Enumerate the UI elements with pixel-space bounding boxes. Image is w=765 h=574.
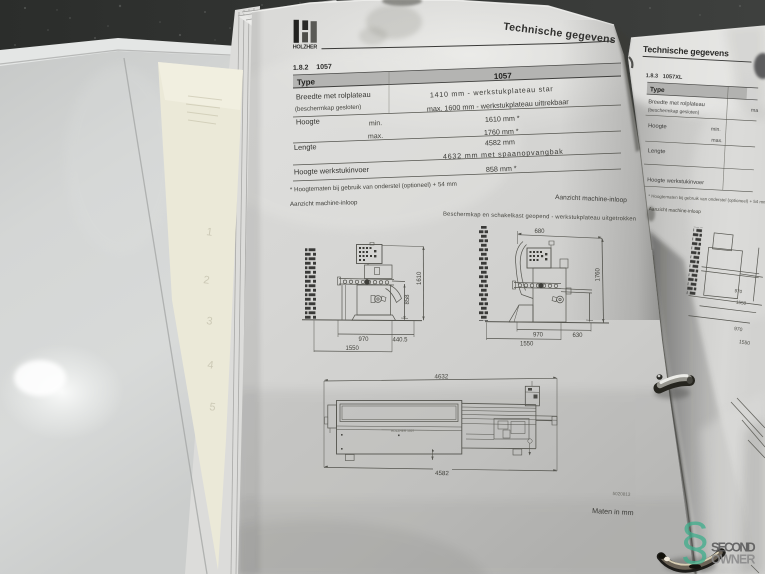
svg-text:5020813: 5020813 — [612, 491, 631, 497]
svg-text:Hoogte: Hoogte — [296, 117, 320, 127]
svg-text:1760: 1760 — [596, 267, 602, 281]
svg-text:970: 970 — [359, 337, 370, 343]
svg-text:970: 970 — [533, 333, 544, 339]
svg-text:4582: 4582 — [435, 470, 449, 477]
svg-text:630: 630 — [573, 333, 584, 339]
svg-text:Lengte: Lengte — [648, 148, 666, 155]
svg-text:HOLZHER 1057: HOLZHER 1057 — [391, 429, 414, 433]
svg-text:max.: max. — [368, 133, 383, 141]
svg-text:Hoogte: Hoogte — [648, 123, 667, 130]
svg-text:1550: 1550 — [520, 342, 534, 348]
svg-text:ma: ma — [751, 108, 759, 114]
svg-text:4582 mm: 4582 mm — [485, 137, 515, 147]
svg-text:Type: Type — [650, 86, 665, 94]
svg-text:min.: min. — [369, 120, 383, 127]
svg-text:1610 mm *: 1610 mm * — [485, 113, 520, 124]
svg-text:Lengte: Lengte — [294, 142, 317, 152]
svg-text:680: 680 — [535, 229, 546, 235]
svg-text:4632: 4632 — [434, 373, 448, 380]
svg-text:Type: Type — [297, 77, 316, 87]
svg-text:1057: 1057 — [494, 71, 513, 81]
svg-text:858: 858 — [405, 294, 411, 305]
svg-text:858 mm *: 858 mm * — [486, 164, 517, 174]
svg-text:1610: 1610 — [417, 271, 423, 285]
svg-text:440.5: 440.5 — [393, 338, 409, 344]
svg-text:OWNER: OWNER — [711, 553, 756, 567]
svg-text:min.: min. — [711, 127, 721, 134]
svg-text:§: § — [680, 513, 709, 572]
svg-text:1.8.2 1057: 1.8.2 1057 — [293, 64, 332, 72]
svg-text:1550: 1550 — [346, 346, 360, 352]
svg-text:HOLZHER: HOLZHER — [293, 45, 318, 51]
svg-text:max.: max. — [711, 138, 723, 145]
